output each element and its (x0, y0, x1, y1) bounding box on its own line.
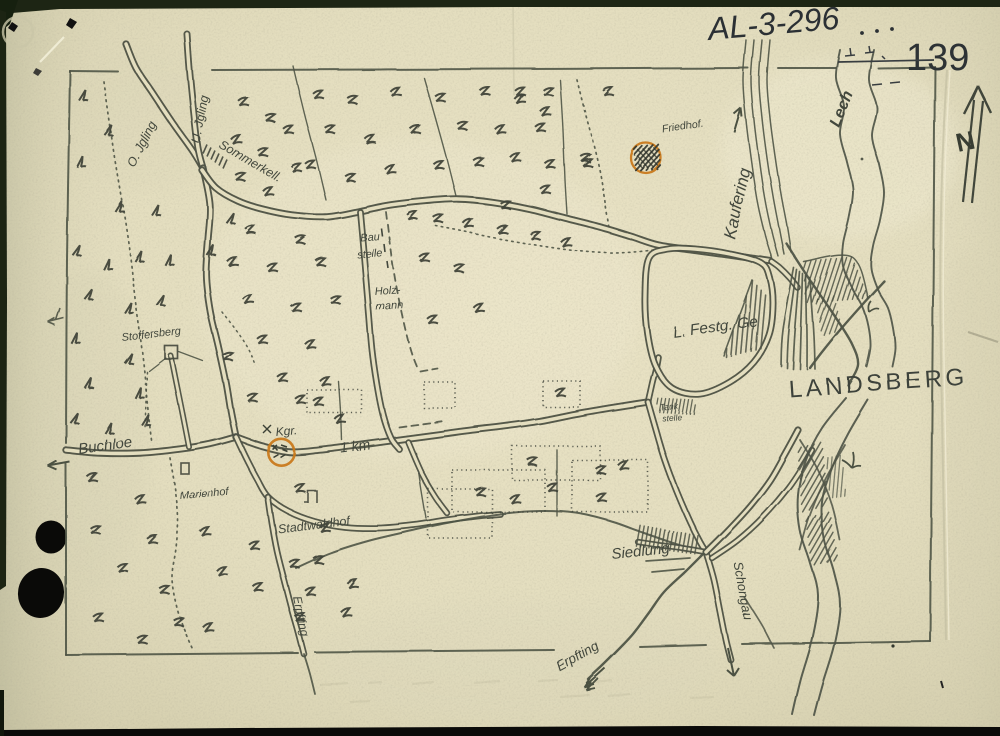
svg-text:mann: mann (375, 299, 403, 313)
svg-text:Kgr.: Kgr. (275, 423, 298, 439)
svg-text:stelle: stelle (356, 247, 382, 261)
svg-text:139: 139 (906, 37, 969, 79)
svg-text:Bau: Bau (359, 231, 379, 244)
svg-text:Holz-: Holz- (374, 284, 401, 298)
svg-text:Tank: Tank (659, 401, 679, 412)
svg-text:stelle: stelle (661, 412, 682, 423)
